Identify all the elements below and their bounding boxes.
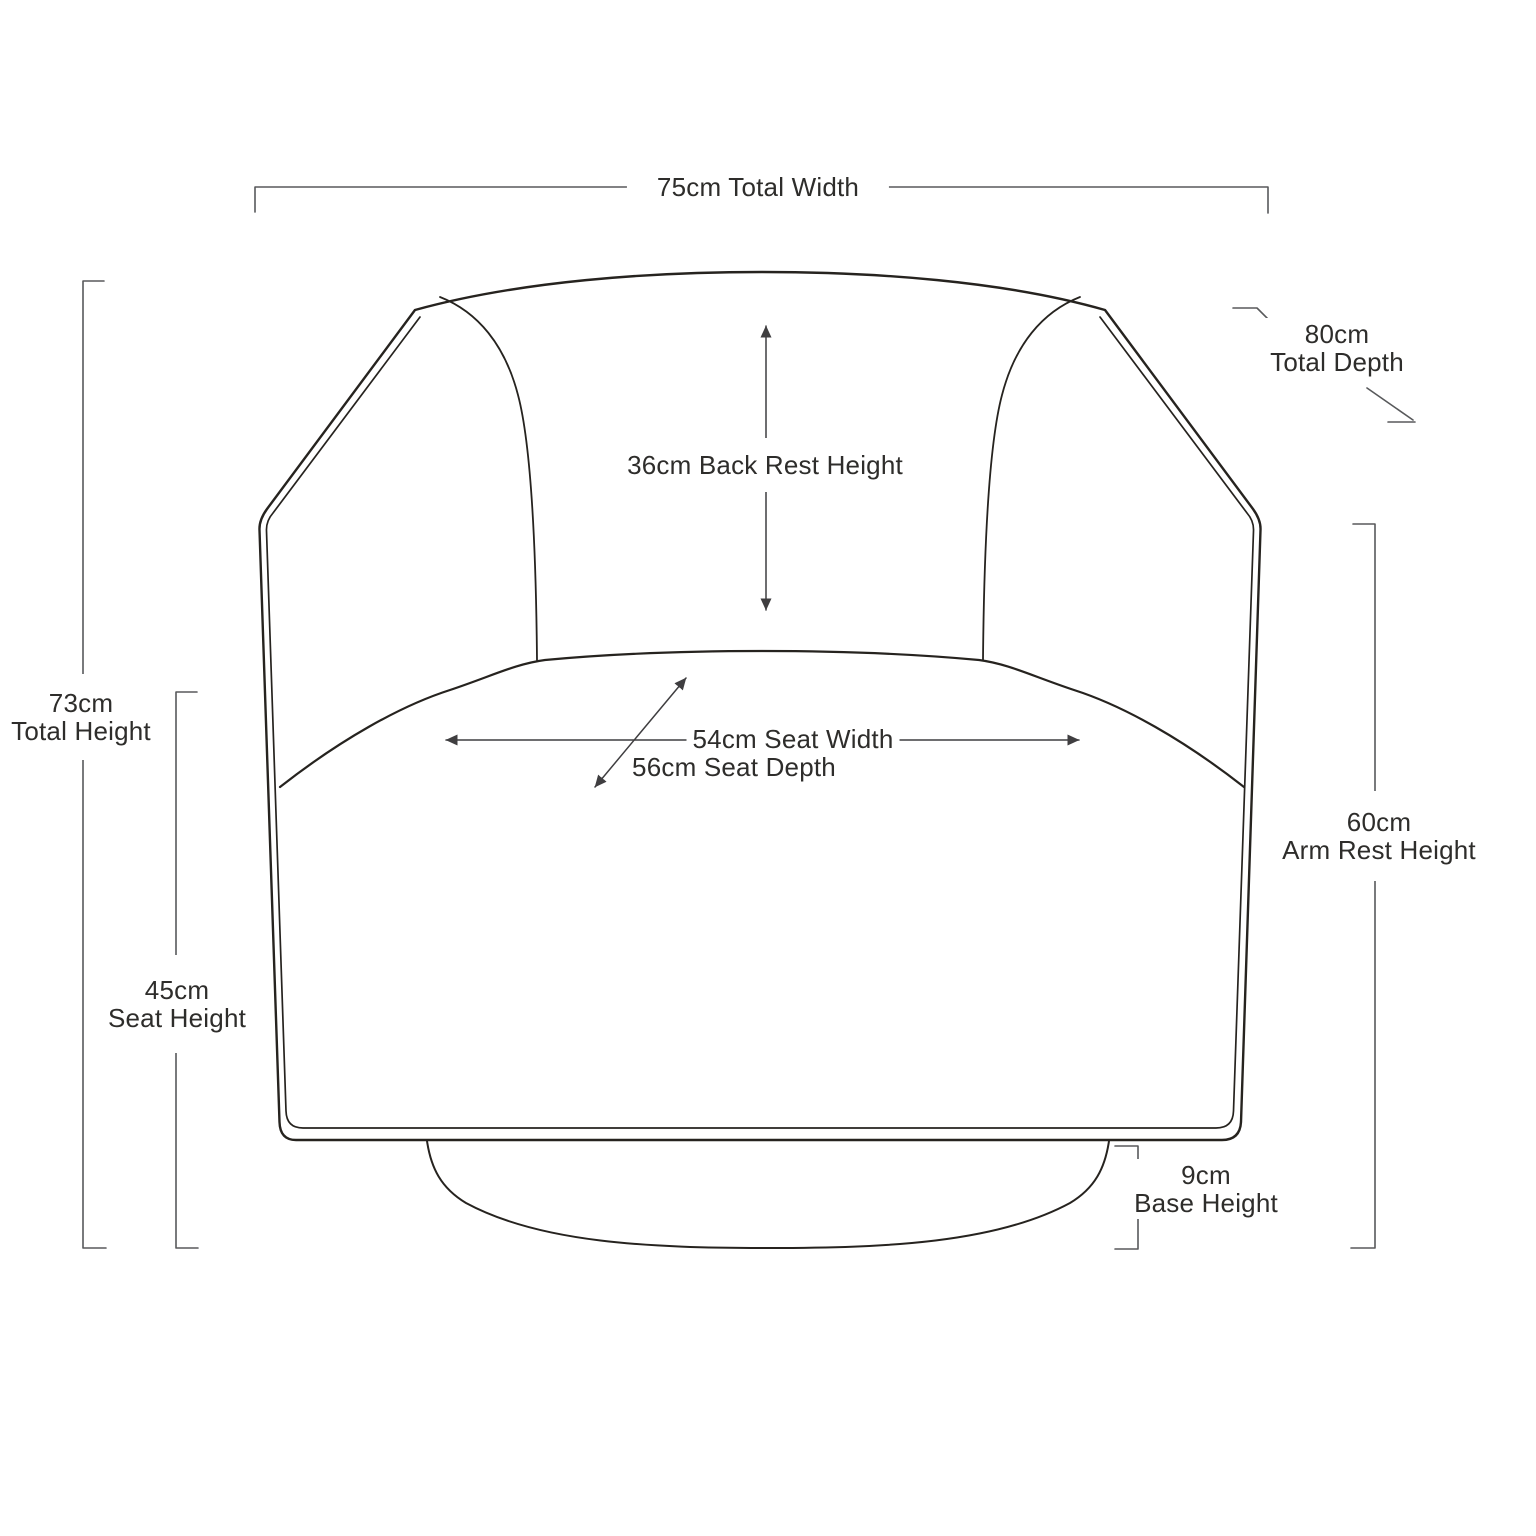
arm-rest-height-name: Arm Rest Height	[1282, 836, 1476, 864]
swivel-base	[427, 1141, 1109, 1248]
dimension-diagram: 75cm Total Width 80cm Total Depth 36cm B…	[0, 0, 1536, 1536]
arm-rest-height-label: 60cm Arm Rest Height	[1274, 791, 1484, 881]
seat-height-value: 45cm	[108, 976, 246, 1004]
dimension-brackets	[83, 187, 1415, 1249]
arm-rest-height-bracket	[1351, 524, 1375, 1248]
total-height-bracket	[83, 281, 106, 1248]
total-depth-name: Total Depth	[1270, 348, 1404, 376]
total-depth-leader-lower	[1367, 388, 1413, 420]
base-height-label: 9cm Base Height	[1128, 1159, 1284, 1219]
seat-height-label: 45cm Seat Height	[100, 955, 254, 1053]
total-height-value: 73cm	[11, 689, 151, 717]
total-depth-value: 80cm	[1270, 320, 1404, 348]
back-rest-height-label: 36cm Back Rest Height	[617, 438, 913, 492]
total-height-name: Total Height	[11, 717, 151, 745]
total-depth-label: 80cm Total Depth	[1264, 318, 1410, 378]
seat-depth-label: 56cm Seat Depth	[626, 752, 842, 782]
base-height-value: 9cm	[1134, 1161, 1278, 1189]
arm-rest-height-value: 60cm	[1282, 808, 1476, 836]
backrest-seam-left	[440, 297, 537, 660]
total-height-label: 73cm Total Height	[3, 674, 159, 760]
backrest-seam-right	[983, 297, 1080, 660]
dimension-arrows	[446, 326, 1079, 787]
seat-height-name: Seat Height	[108, 1004, 246, 1032]
base-height-name: Base Height	[1134, 1189, 1278, 1217]
seat-width-label: 54cm Seat Width	[687, 724, 900, 754]
diagram-canvas: { "page": { "type": "product-dimension-d…	[0, 0, 1536, 1536]
total-width-label: 75cm Total Width	[627, 173, 889, 201]
